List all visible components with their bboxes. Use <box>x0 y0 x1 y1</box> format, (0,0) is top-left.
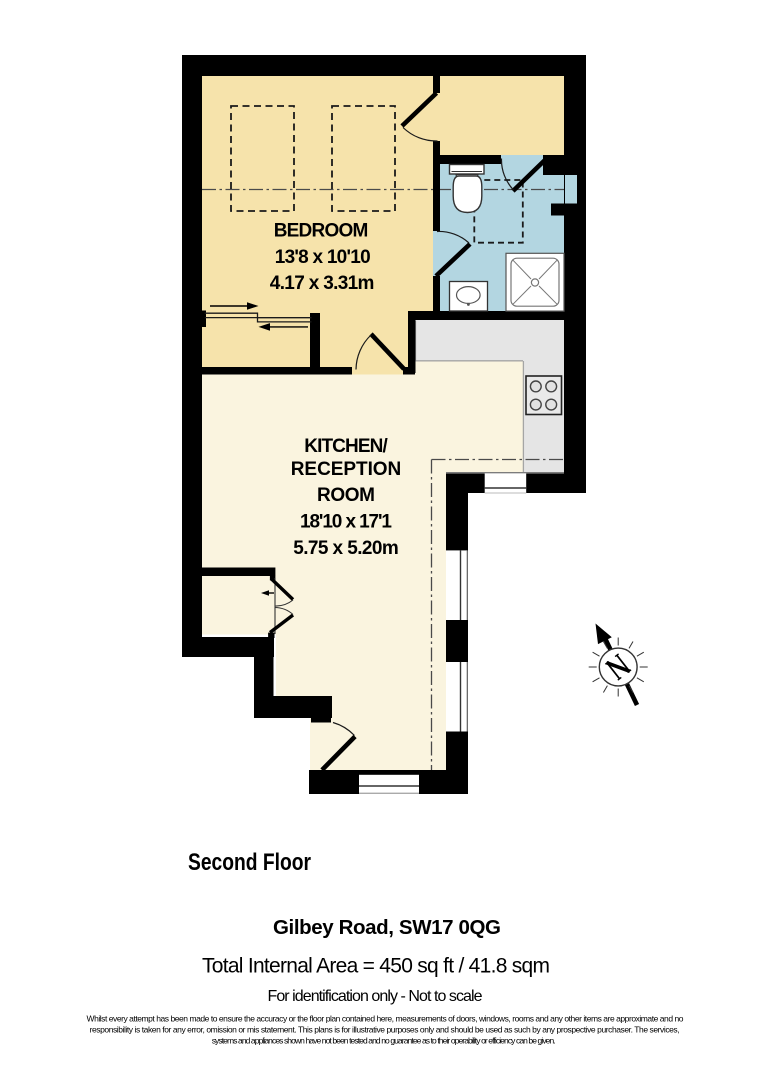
svg-text:13'8 x 10'10: 13'8 x 10'10 <box>275 247 371 268</box>
svg-text:responsibility is taken for an: responsibility is taken for any error, o… <box>90 1025 680 1035</box>
svg-text:Gilbey Road, SW17 0QG: Gilbey Road, SW17 0QG <box>273 916 501 939</box>
svg-text:Total Internal Area = 450 sq f: Total Internal Area = 450 sq ft / 41.8 s… <box>202 955 550 978</box>
svg-text:ROOM: ROOM <box>317 485 375 506</box>
svg-text:RECEPTION: RECEPTION <box>291 459 402 480</box>
svg-text:4.17 x 3.31m: 4.17 x 3.31m <box>270 273 375 294</box>
svg-text:Second Floor: Second Floor <box>188 849 311 876</box>
svg-text:BEDROOM: BEDROOM <box>274 221 369 242</box>
svg-text:For identification only - Not: For identification only - Not to scale <box>268 988 483 1005</box>
svg-text:systems and appliances shown h: systems and appliances shown have not be… <box>212 1036 556 1046</box>
svg-text:18'10 x 17'1: 18'10 x 17'1 <box>300 512 392 533</box>
svg-text:5.75 x 5.20m: 5.75 x 5.20m <box>293 538 399 559</box>
svg-text:Whilst every attempt has been: Whilst every attempt has been made to en… <box>87 1014 684 1024</box>
svg-text:KITCHEN/: KITCHEN/ <box>304 436 388 457</box>
